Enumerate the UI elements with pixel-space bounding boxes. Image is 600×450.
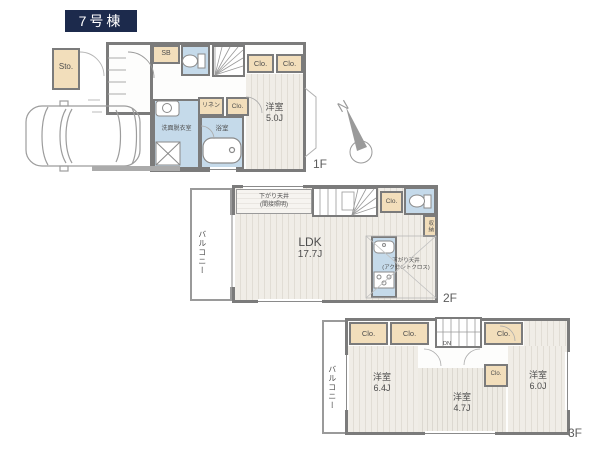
f2-storage-label: 収納 bbox=[425, 217, 435, 235]
f3-closet-b-label: Clo. bbox=[390, 328, 429, 338]
f1-washroom-label: 洗面脱衣室 bbox=[153, 125, 200, 135]
f3-room3-size: 6.0J bbox=[529, 381, 546, 392]
f2-top-window bbox=[243, 184, 303, 189]
f2-balcony-label: バルコニー bbox=[196, 212, 208, 292]
storage-shed-label: Sto. bbox=[52, 60, 80, 74]
f1-bath-window bbox=[210, 167, 236, 172]
f3-room1-label: 洋室 6.4J bbox=[352, 370, 412, 396]
f1-room-size: 5.0J bbox=[266, 113, 283, 124]
building-title: 7号棟 bbox=[65, 10, 137, 32]
f3-room3-label: 洋室 6.0J bbox=[513, 368, 563, 394]
f3-bottom-window bbox=[425, 431, 495, 436]
f2-ldk-name: LDK bbox=[298, 235, 321, 249]
f3-right-window bbox=[565, 352, 570, 410]
f3-room3-floor-upper bbox=[524, 321, 567, 346]
f1-closet-b-label: Clo. bbox=[276, 58, 303, 68]
compass-north-label: N bbox=[334, 96, 351, 115]
f1-shoebox-label: SB bbox=[152, 49, 180, 59]
f2-closet-label: Clo. bbox=[380, 197, 403, 207]
f1-linen-label: リネン bbox=[198, 102, 224, 112]
f3-room2-size: 4.7J bbox=[453, 403, 470, 414]
f3-closet-d-label: Clo. bbox=[484, 370, 508, 380]
f1-label: 1F bbox=[313, 157, 327, 171]
f2-dropped-ceiling-note: 下がり天井 (間接照明) bbox=[236, 191, 312, 212]
f1-closet-a-label: Clo. bbox=[247, 58, 274, 68]
f2-kitchen-note-line2: (アクセントクロス) bbox=[382, 265, 429, 272]
f2-ldk-label: LDK 17.7J bbox=[280, 234, 340, 262]
compass-icon: N bbox=[334, 96, 372, 163]
f1-western-room-label: 洋室 5.0J bbox=[246, 100, 303, 126]
f1-staircase bbox=[212, 45, 245, 77]
f1-entrance-block bbox=[106, 42, 155, 115]
f1-room-name: 洋室 bbox=[265, 102, 283, 113]
f3-room1-name: 洋室 bbox=[373, 372, 391, 383]
f3-room1-size: 6.4J bbox=[373, 383, 390, 394]
f3-balcony-label: バルコニー bbox=[326, 352, 338, 422]
f3-label: 3F bbox=[568, 426, 582, 440]
f2-kitchen-ceiling-note: 下がり天井 (アクセントクロス) bbox=[378, 256, 434, 274]
f3-room2-label: 洋室 4.7J bbox=[428, 390, 496, 416]
f3-room3-name: 洋室 bbox=[529, 370, 547, 381]
f1-bathroom-label: 浴室 bbox=[200, 124, 244, 134]
f3-stairs-dn-label: DN bbox=[437, 340, 457, 348]
f2-toilet-room bbox=[404, 187, 436, 215]
f2-staircase bbox=[312, 187, 378, 217]
f1-bay-window bbox=[305, 88, 316, 157]
f2-kitchen-note-line1: 下がり天井 bbox=[392, 258, 420, 265]
shed-door-arc bbox=[80, 52, 104, 76]
f2-balcony-door-window bbox=[229, 215, 235, 287]
f1-closet-c-label: Clo. bbox=[226, 102, 249, 112]
f3-closet-a-label: Clo. bbox=[349, 328, 388, 338]
f3-left-window bbox=[344, 355, 349, 410]
f2-ceiling-note-line2: (間接照明) bbox=[260, 202, 288, 209]
f2-ceiling-note-line1: 下がり天井 bbox=[259, 194, 289, 201]
f1-toilet-room bbox=[181, 45, 210, 76]
f3-closet-c-label: Clo. bbox=[484, 328, 523, 338]
f2-bottom-window bbox=[258, 299, 322, 304]
floorplan-canvas: 7号棟 Sto. SB Clo. Clo. 洋室 5.0J リネン Clo. 洗… bbox=[0, 0, 600, 450]
f3-room2-name: 洋室 bbox=[453, 392, 471, 403]
f2-label: 2F bbox=[443, 291, 457, 305]
f2-ldk-size: 17.7J bbox=[298, 249, 322, 261]
